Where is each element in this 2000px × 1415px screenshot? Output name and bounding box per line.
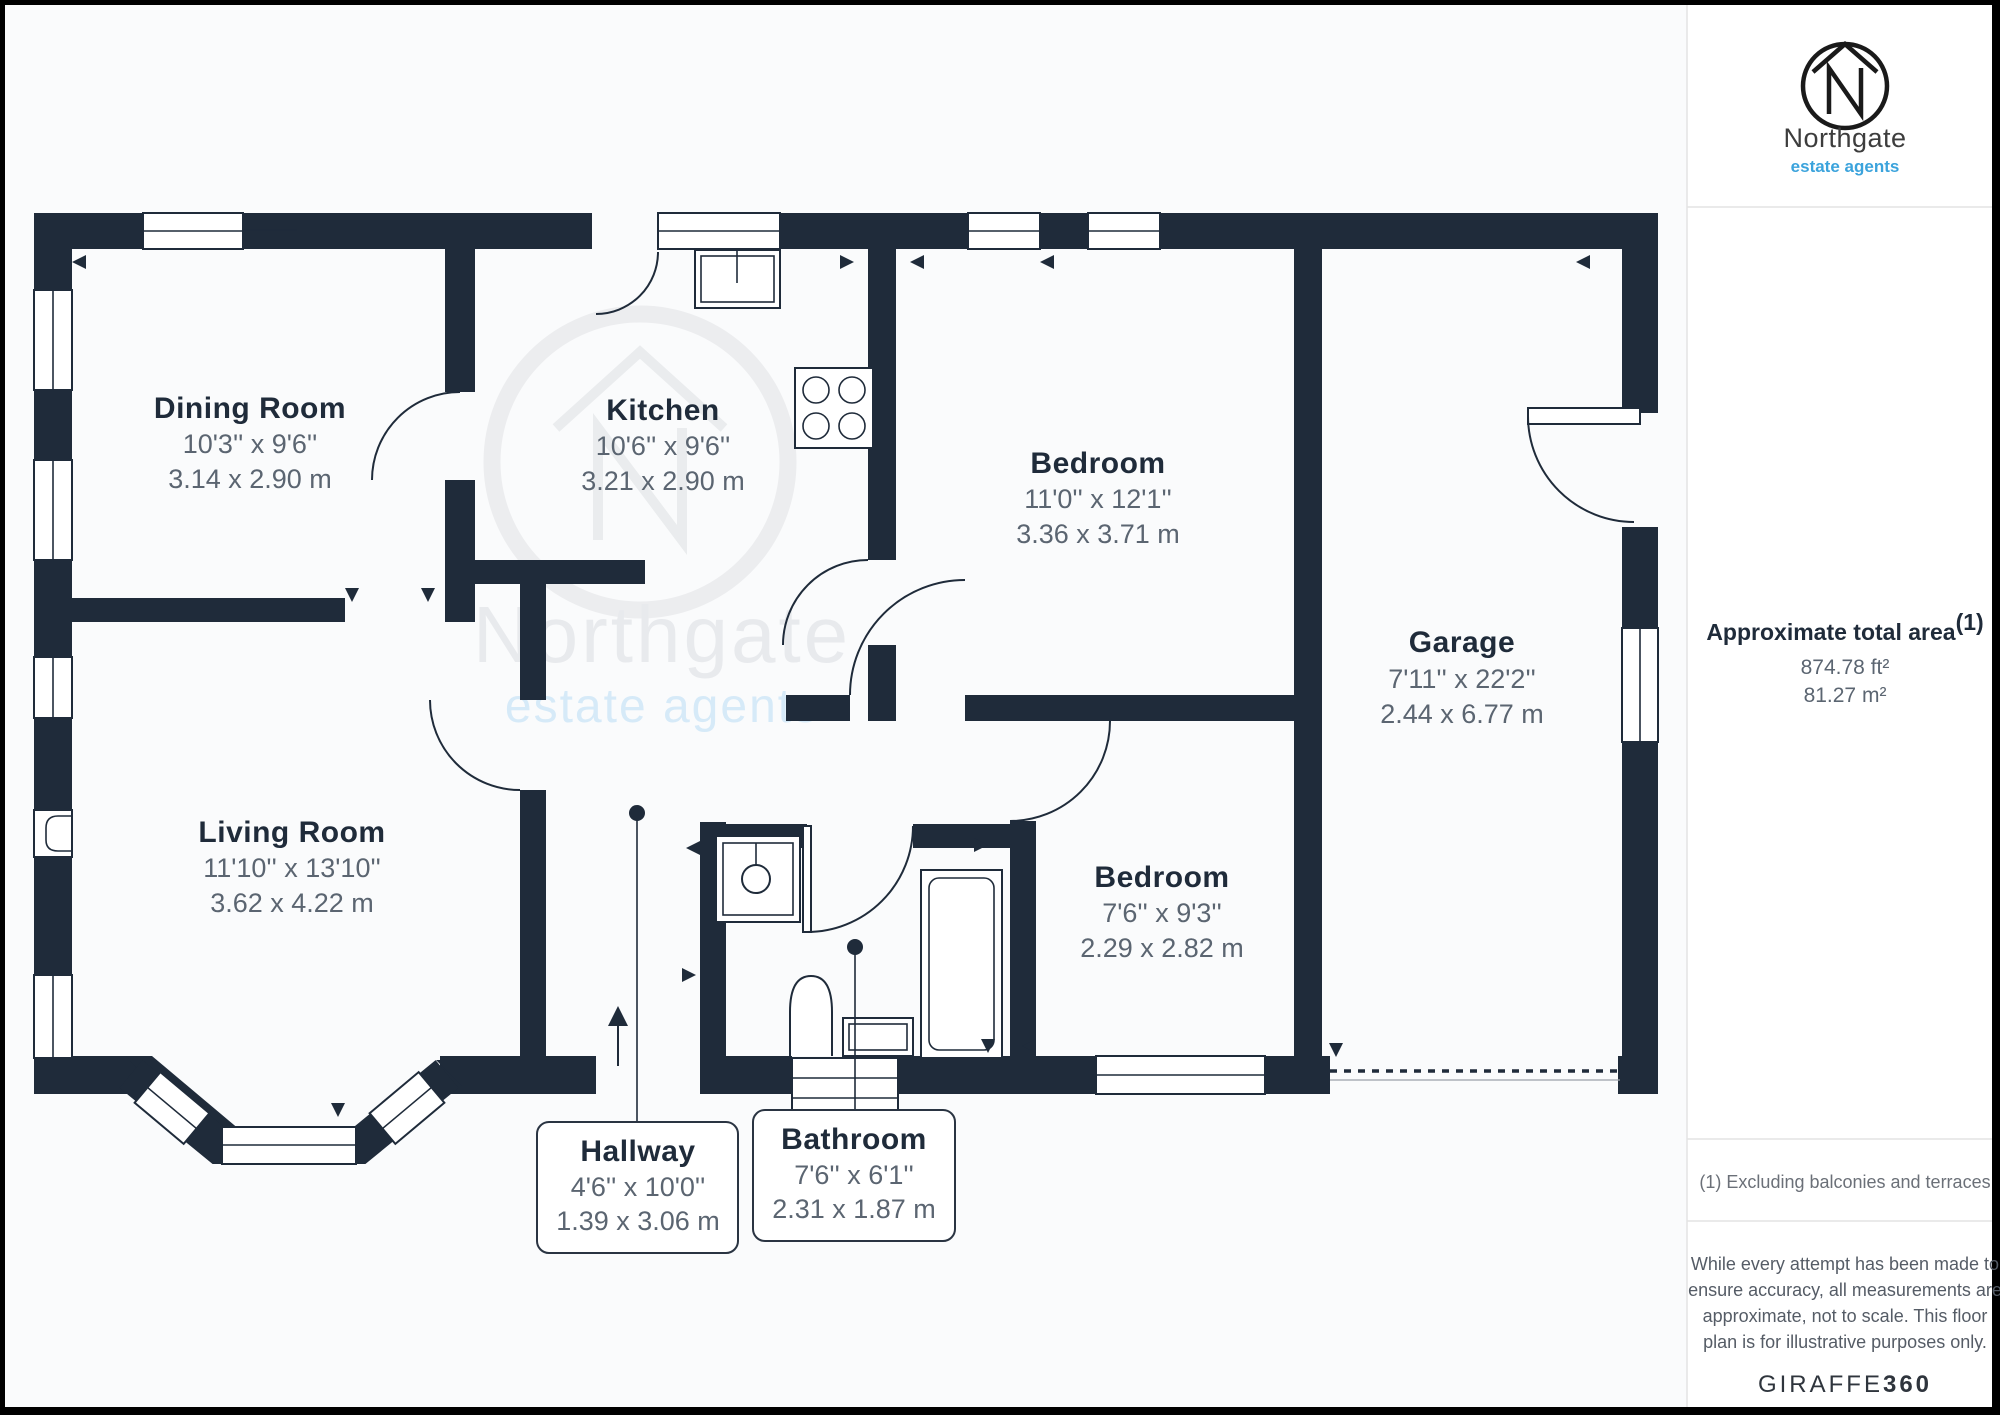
wall-segment bbox=[34, 560, 72, 657]
disclaimer-line: plan is for illustrative purposes only. bbox=[1703, 1332, 1987, 1352]
stove bbox=[795, 368, 873, 448]
wall-segment bbox=[470, 560, 645, 584]
wall-segment bbox=[898, 1056, 1096, 1094]
bathtub bbox=[921, 870, 1002, 1058]
room-dims-imperial: 11'0'' x 12'1'' bbox=[1024, 484, 1172, 514]
wall-segment bbox=[1040, 213, 1088, 249]
room-dims-metric: 2.44 x 6.77 m bbox=[1380, 699, 1544, 729]
wall-segment bbox=[1622, 527, 1658, 628]
wall-segment bbox=[1622, 213, 1658, 413]
room-dims-metric: 3.36 x 3.71 m bbox=[1016, 519, 1180, 549]
area-metric: 81.27 m² bbox=[1804, 684, 1887, 707]
room-dims-imperial: 7'6'' x 9'3'' bbox=[1102, 898, 1222, 928]
wall-segment bbox=[520, 560, 546, 700]
wall-segment bbox=[1265, 1056, 1330, 1094]
wall-segment bbox=[72, 598, 345, 622]
room-label: Bedroom bbox=[1030, 447, 1165, 480]
wall-segment bbox=[445, 480, 475, 622]
room-dims-metric: 1.39 x 3.06 m bbox=[556, 1206, 720, 1236]
room-dims-imperial: 10'6'' x 9'6'' bbox=[596, 431, 731, 461]
wall-segment bbox=[1622, 742, 1658, 1094]
room-label: Kitchen bbox=[606, 394, 720, 427]
wall-segment bbox=[786, 695, 850, 721]
kitchen-sink bbox=[695, 250, 780, 308]
room-label: Bedroom bbox=[1094, 861, 1229, 894]
disclaimer-line: approximate, not to scale. This floor bbox=[1703, 1306, 1988, 1326]
room-label: Dining Room bbox=[154, 392, 346, 425]
wall-segment bbox=[780, 213, 968, 249]
leader-dot bbox=[629, 805, 645, 821]
room-dims-metric: 3.21 x 2.90 m bbox=[581, 466, 745, 496]
wall-segment bbox=[1010, 821, 1036, 1058]
room-label: Garage bbox=[1409, 626, 1515, 659]
footnote: (1) Excluding balconies and terraces bbox=[1699, 1172, 1990, 1192]
giraffe360-credit: GIRAFFE360 bbox=[1758, 1371, 1932, 1398]
sidebar-brand-tagline: estate agents bbox=[1791, 157, 1900, 176]
watermark-tagline: estate agents bbox=[505, 680, 819, 733]
sidebar-brand: Northgate bbox=[1783, 123, 1906, 153]
wall-segment bbox=[913, 824, 1010, 848]
room-label: Bathroom bbox=[781, 1123, 927, 1156]
wall-segment bbox=[520, 790, 546, 1056]
wall-segment bbox=[34, 718, 72, 810]
wall-segment bbox=[34, 857, 72, 975]
wall-segment bbox=[34, 213, 72, 290]
wall-segment bbox=[1618, 1056, 1658, 1094]
disclaimer-line: ensure accuracy, all measurements are bbox=[1688, 1280, 2000, 1300]
wall-segment bbox=[243, 213, 592, 249]
room-label: Hallway bbox=[580, 1135, 695, 1168]
leader-dot bbox=[847, 939, 863, 955]
door-leaf bbox=[1528, 408, 1640, 424]
toilet bbox=[790, 976, 832, 1056]
room-dims-metric: 3.14 x 2.90 m bbox=[168, 464, 332, 494]
room-dims-imperial: 4'6'' x 10'0'' bbox=[571, 1172, 706, 1202]
wall-segment bbox=[965, 695, 1305, 721]
door-leaf bbox=[803, 826, 811, 932]
shower bbox=[716, 836, 800, 922]
wall-segment bbox=[700, 1056, 792, 1094]
wall-segment bbox=[440, 1056, 596, 1094]
wall-segment bbox=[1294, 249, 1322, 1058]
wall-segment bbox=[868, 645, 896, 721]
floorplan-canvas: Northgate estate agents bbox=[0, 0, 2000, 1415]
room-dims-metric: 2.29 x 2.82 m bbox=[1080, 933, 1244, 963]
room-dims-imperial: 10'3'' x 9'6'' bbox=[183, 429, 318, 459]
room-dims-imperial: 7'6'' x 6'1'' bbox=[794, 1160, 914, 1190]
disclaimer-line: While every attempt has been made to bbox=[1691, 1254, 1999, 1274]
wall-segment bbox=[1160, 213, 1658, 249]
bathroom-sink bbox=[843, 1018, 913, 1056]
area-imperial: 874.78 ft² bbox=[1801, 656, 1890, 679]
room-label: Living Room bbox=[198, 816, 385, 849]
floorplan-page: Northgate estate agents bbox=[0, 0, 2000, 1415]
room-dims-imperial: 11'10'' x 13'10'' bbox=[203, 853, 381, 883]
room-dims-imperial: 7'11'' x 22'2'' bbox=[1388, 664, 1536, 694]
wall-segment bbox=[445, 249, 475, 392]
room-dims-metric: 2.31 x 1.87 m bbox=[772, 1194, 936, 1224]
room-dims-metric: 3.62 x 4.22 m bbox=[210, 888, 374, 918]
wall-segment bbox=[34, 390, 72, 460]
